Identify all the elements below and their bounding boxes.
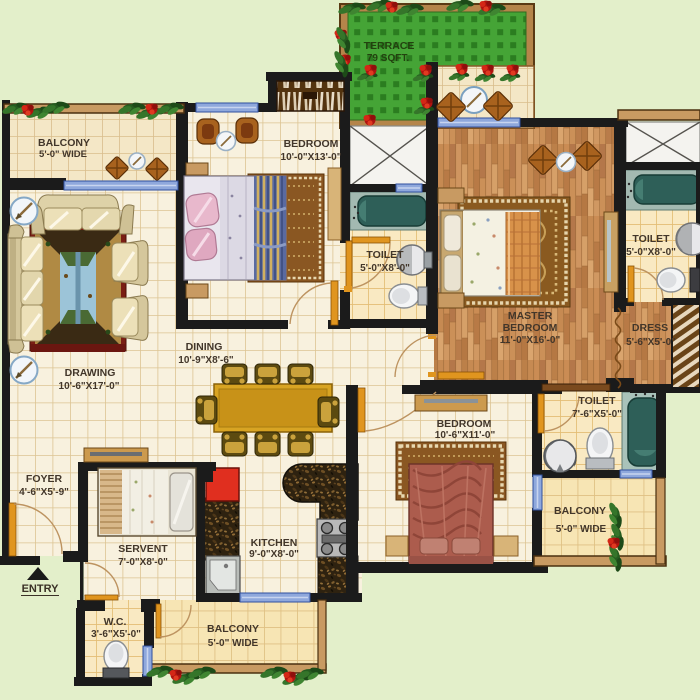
svg-text:9'-0"X8'-0": 9'-0"X8'-0" [249, 549, 299, 560]
svg-text:4'-6"X5'-9": 4'-6"X5'-9" [19, 487, 69, 498]
svg-text:5'-0"X8'-0": 5'-0"X8'-0" [360, 263, 410, 274]
svg-text:FOYER: FOYER [26, 473, 63, 485]
svg-text:3'-6"X5'-0": 3'-6"X5'-0" [91, 629, 141, 640]
svg-text:BEDROOM: BEDROOM [437, 418, 492, 430]
svg-text:79 SQFT.: 79 SQFT. [367, 53, 409, 64]
svg-text:11'-0"X16'-0": 11'-0"X16'-0" [500, 335, 561, 346]
svg-text:TOILET: TOILET [578, 395, 616, 407]
svg-text:BEDROOM: BEDROOM [284, 138, 339, 150]
svg-text:MASTER: MASTER [508, 310, 553, 322]
svg-text:5'-0" WIDE: 5'-0" WIDE [556, 524, 607, 535]
svg-text:TOILET: TOILET [632, 233, 670, 245]
svg-text:BALCONY: BALCONY [207, 623, 259, 635]
svg-text:5'-0"X8'-0": 5'-0"X8'-0" [626, 247, 676, 258]
svg-text:TERRACE: TERRACE [364, 40, 415, 52]
svg-text:10'-6"X17'-0": 10'-6"X17'-0" [59, 381, 120, 392]
svg-text:5'-0" WIDE: 5'-0" WIDE [39, 149, 87, 160]
svg-text:7'-6"X5'-0": 7'-6"X5'-0" [572, 409, 622, 420]
svg-text:DRAWING: DRAWING [65, 367, 116, 379]
svg-text:DINING: DINING [186, 341, 223, 353]
svg-text:ENTRY: ENTRY [22, 583, 60, 595]
svg-text:SERVENT: SERVENT [118, 543, 168, 555]
svg-text:TOILET: TOILET [366, 249, 404, 261]
svg-text:10'-0"X13'-0": 10'-0"X13'-0" [281, 152, 342, 163]
svg-text:KITCHEN: KITCHEN [251, 537, 298, 549]
svg-text:BEDROOM: BEDROOM [503, 322, 558, 334]
svg-text:10'-6"X11'-0": 10'-6"X11'-0" [435, 430, 496, 441]
svg-text:5'-0" WIDE: 5'-0" WIDE [208, 638, 259, 649]
svg-text:10'-9"X8'-6": 10'-9"X8'-6" [178, 355, 234, 366]
svg-text:BALCONY: BALCONY [554, 505, 606, 517]
svg-text:BALCONY: BALCONY [38, 137, 90, 149]
svg-text:7'-0"X8'-0": 7'-0"X8'-0" [118, 557, 168, 568]
svg-text:5'-6"X5'-0": 5'-6"X5'-0" [626, 337, 676, 348]
svg-text:DRESS: DRESS [632, 322, 668, 334]
svg-text:W.C.: W.C. [104, 616, 127, 628]
